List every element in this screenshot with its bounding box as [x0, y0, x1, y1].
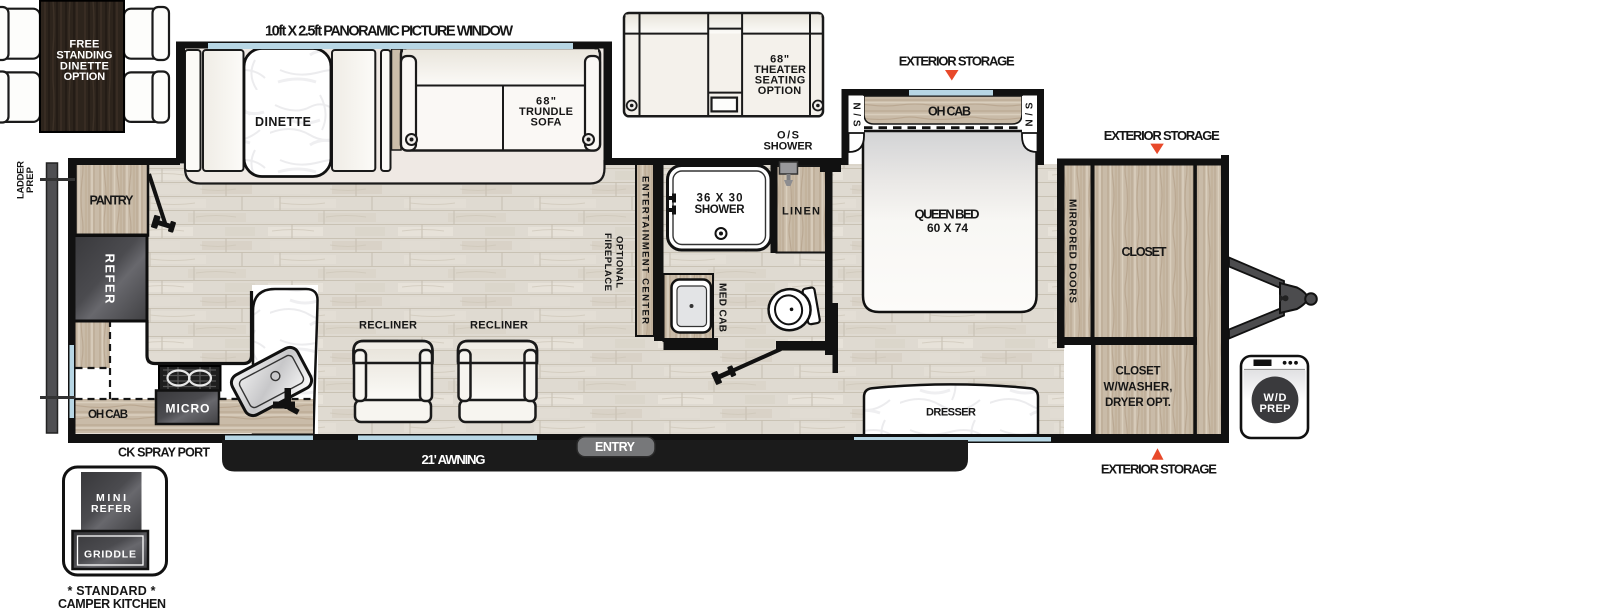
svg-text:DRESSER: DRESSER	[926, 407, 976, 419]
svg-text:CK SPRAY PORT: CK SPRAY PORT	[118, 446, 210, 460]
svg-text:PREP: PREP	[1260, 403, 1291, 415]
svg-text:21' AWNING: 21' AWNING	[422, 452, 486, 467]
svg-text:EXTERIOR STORAGE: EXTERIOR STORAGE	[899, 54, 1015, 69]
svg-text:FIREPLACE: FIREPLACE	[602, 233, 613, 291]
svg-text:GRIDDLE: GRIDDLE	[84, 549, 136, 561]
svg-text:10ft X 2.5ft PANORAMIC PICTURE: 10ft X 2.5ft PANORAMIC PICTURE WINDOW	[265, 24, 513, 40]
svg-text:EXTERIOR STORAGE: EXTERIOR STORAGE	[1101, 462, 1217, 477]
svg-text:SHOWER: SHOWER	[695, 204, 746, 216]
svg-text:EXTERIOR STORAGE: EXTERIOR STORAGE	[1104, 128, 1220, 143]
svg-text:ENTRY: ENTRY	[595, 440, 636, 454]
svg-text:RECLINER: RECLINER	[359, 320, 417, 332]
svg-text:N/S: N/S	[851, 103, 862, 127]
svg-text:MIRRORED DOORS: MIRRORED DOORS	[1067, 199, 1078, 303]
svg-text:60 X 74: 60 X 74	[927, 221, 968, 235]
svg-text:QUEEN BED: QUEEN BED	[915, 207, 980, 222]
svg-text:36 X 30: 36 X 30	[697, 193, 743, 205]
svg-text:N/S: N/S	[1025, 102, 1036, 126]
svg-text:OPTIONAL: OPTIONAL	[614, 236, 625, 288]
svg-text:OH CAB: OH CAB	[928, 105, 971, 119]
svg-text:PREP: PREP	[25, 166, 36, 193]
svg-text:OPTION: OPTION	[758, 85, 802, 97]
svg-text:CAMPER KITCHEN: CAMPER KITCHEN	[58, 597, 166, 609]
svg-text:DRYER OPT.: DRYER OPT.	[1105, 397, 1171, 409]
svg-text:CLOSET: CLOSET	[1116, 366, 1161, 378]
svg-text:SOFA: SOFA	[531, 117, 562, 129]
svg-text:CLOSET: CLOSET	[1122, 245, 1167, 259]
svg-text:W/WASHER,: W/WASHER,	[1104, 382, 1173, 394]
svg-text:* STANDARD *: * STANDARD *	[68, 584, 156, 598]
svg-text:MICRO: MICRO	[166, 402, 210, 416]
svg-text:MED CAB: MED CAB	[717, 283, 728, 332]
svg-text:OH CAB: OH CAB	[88, 409, 128, 421]
svg-text:LINEN: LINEN	[782, 206, 820, 218]
svg-text:REFER: REFER	[91, 503, 131, 515]
svg-text:SHOWER: SHOWER	[764, 141, 813, 153]
svg-text:PANTRY: PANTRY	[90, 194, 135, 208]
svg-text:REFER: REFER	[103, 254, 118, 305]
svg-text:RECLINER: RECLINER	[470, 320, 528, 332]
svg-text:OPTION: OPTION	[64, 71, 106, 83]
svg-text:DINETTE: DINETTE	[255, 115, 311, 129]
